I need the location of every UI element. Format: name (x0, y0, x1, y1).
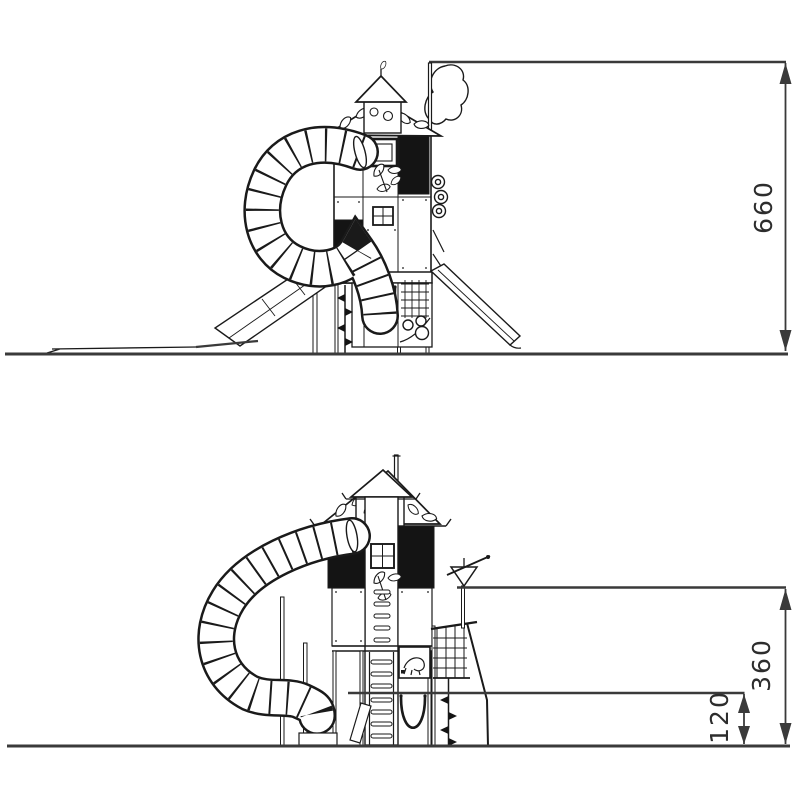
finial-leaf (378, 60, 388, 69)
top-roof (351, 470, 412, 497)
technical-drawing-sheet: 660 (0, 0, 800, 800)
porthole (416, 316, 426, 326)
net-post (432, 626, 435, 746)
dimension-label-660: 660 (749, 180, 778, 234)
climbing-rope (401, 697, 425, 728)
post (333, 651, 336, 746)
upper-elevation-view: 660 (5, 60, 792, 354)
chameleon-panel (399, 647, 430, 678)
rope-anchor (423, 694, 426, 697)
lookout-box (364, 99, 401, 133)
decorative-curls (432, 176, 448, 218)
climbing-stones (440, 678, 457, 746)
arrow-down-icon (780, 723, 792, 744)
side-panel-left (332, 588, 365, 646)
bird-feeder (447, 555, 490, 628)
dimension-120: 120 (348, 690, 750, 744)
arrow-up-icon (780, 63, 792, 84)
mesh-panel-right (398, 526, 434, 588)
arrow-down-icon (738, 726, 750, 744)
elevation-drawings-canvas: 660 (0, 0, 800, 800)
post (335, 283, 338, 354)
dimension-360: 360 (457, 588, 792, 745)
porthole (416, 327, 429, 340)
top-roof (356, 76, 406, 102)
climbing-stones (337, 285, 353, 353)
tube-exit-step (299, 733, 337, 745)
lower-elevation-view: 360 120 (7, 455, 792, 746)
right-slide (431, 264, 521, 348)
arrow-down-icon (780, 330, 792, 351)
dimension-label-360: 360 (747, 638, 776, 692)
side-panel-right (398, 588, 432, 646)
dimension-label-120: 120 (705, 690, 734, 744)
feeder-pole (462, 586, 465, 628)
tube-support-post (281, 597, 285, 746)
rope-anchor (399, 694, 402, 697)
arrow-up-icon (738, 694, 750, 713)
slide-berm (196, 341, 258, 347)
arrow-up-icon (780, 589, 792, 610)
climbing-net (431, 622, 488, 746)
feeder-funnel (451, 567, 477, 586)
mesh-panel-upper (399, 136, 429, 194)
porthole (403, 320, 413, 330)
